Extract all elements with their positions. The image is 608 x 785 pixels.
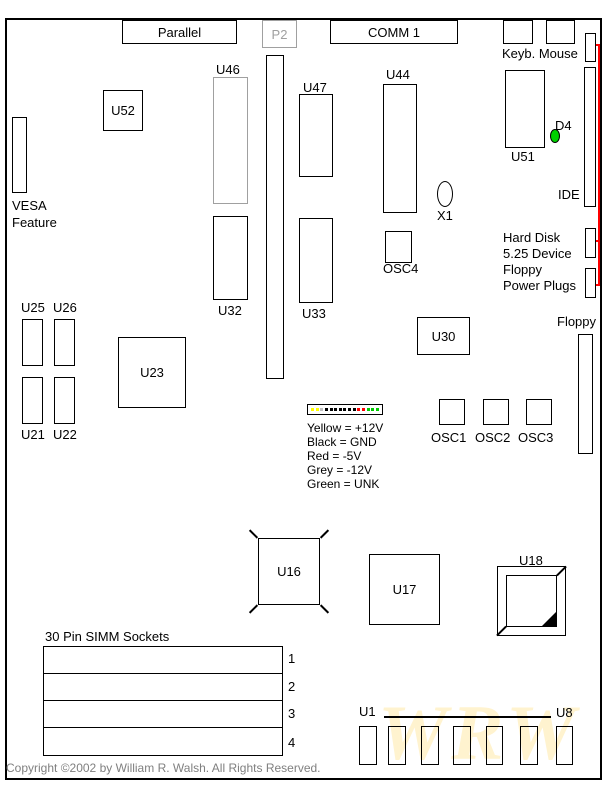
chip-u25 bbox=[22, 319, 43, 366]
power-caption-line2: 5.25 Device bbox=[503, 247, 572, 261]
chip-u46 bbox=[213, 77, 248, 204]
chip-u52: U52 bbox=[103, 90, 143, 131]
power-connector-pins bbox=[307, 404, 383, 415]
chip-u33 bbox=[299, 218, 333, 303]
simm-socket-4 bbox=[43, 727, 283, 756]
chip-u30: U30 bbox=[417, 317, 470, 355]
dip-chip-7 bbox=[556, 726, 573, 765]
power-pin-dot bbox=[334, 408, 337, 411]
simm-number-2: 2 bbox=[288, 680, 295, 694]
u22-label: U22 bbox=[53, 428, 77, 442]
parallel-port-label: Parallel bbox=[158, 25, 201, 40]
vesa-label-line1: VESA bbox=[12, 199, 47, 213]
power-pin-dot bbox=[316, 408, 319, 411]
power-caption-line1: Hard Disk bbox=[503, 231, 560, 245]
copyright-text: Copyright ©2002 by William R. Walsh. All… bbox=[6, 761, 321, 775]
chip-u32 bbox=[213, 216, 248, 300]
vesa-label-line2: Feature bbox=[12, 216, 57, 230]
led-d4 bbox=[550, 129, 560, 143]
chip-u23: U23 bbox=[118, 337, 186, 408]
dip-chip-2 bbox=[388, 726, 406, 765]
u26-label: U26 bbox=[53, 301, 77, 315]
chip-u44 bbox=[383, 84, 417, 213]
legend-line-green: Green = UNK bbox=[307, 477, 379, 491]
u30-label: U30 bbox=[432, 329, 456, 344]
osc3-label: OSC3 bbox=[518, 431, 553, 445]
power-caption-line4: Power Plugs bbox=[503, 279, 576, 293]
power-plug-connector-2 bbox=[585, 268, 596, 298]
ide-label: IDE bbox=[558, 188, 580, 202]
u18-pin1-corner-mark bbox=[542, 612, 556, 626]
legend-line-black: Black = GND bbox=[307, 435, 377, 449]
u33-label: U33 bbox=[302, 307, 326, 321]
u17-label: U17 bbox=[393, 582, 417, 597]
power-pin-dot bbox=[376, 408, 379, 411]
u47-label: U47 bbox=[303, 81, 327, 95]
chip-u26 bbox=[54, 319, 75, 366]
oscillator-osc2 bbox=[483, 399, 509, 425]
red-line-vertical bbox=[598, 44, 600, 286]
u51-label: U51 bbox=[511, 150, 535, 164]
osc2-label: OSC2 bbox=[475, 431, 510, 445]
crystal-x1 bbox=[437, 181, 453, 207]
parallel-port-connector: Parallel bbox=[122, 20, 237, 44]
u8-label: U8 bbox=[556, 706, 573, 720]
dip-chip-3 bbox=[421, 726, 439, 765]
chip-u17: U17 bbox=[369, 554, 440, 625]
vesa-feature-connector bbox=[12, 117, 27, 193]
dip-chip-6 bbox=[520, 726, 538, 765]
keyb-mouse-label: Keyb. Mouse bbox=[502, 47, 578, 61]
legend-line-grey: Grey = -12V bbox=[307, 463, 372, 477]
legend-line-yellow: Yellow = +12V bbox=[307, 421, 383, 435]
ide-connector bbox=[584, 67, 596, 207]
simm-number-3: 3 bbox=[288, 707, 295, 721]
power-pin-dot bbox=[348, 408, 351, 411]
osc4-label: OSC4 bbox=[383, 262, 418, 276]
simm-socket-1 bbox=[43, 646, 283, 674]
comm1-label: COMM 1 bbox=[368, 25, 420, 40]
small-header-connector bbox=[585, 33, 596, 62]
power-pin-dot bbox=[330, 408, 333, 411]
power-caption-line3: Floppy bbox=[503, 263, 542, 277]
simm-socket-2 bbox=[43, 673, 283, 701]
u21-label: U21 bbox=[21, 428, 45, 442]
u1-u8-span-line bbox=[384, 716, 551, 718]
u25-label: U25 bbox=[21, 301, 45, 315]
floppy-label: Floppy bbox=[557, 315, 596, 329]
dip-chip-5 bbox=[486, 726, 503, 765]
oscillator-osc4 bbox=[385, 231, 412, 263]
power-pin-dot bbox=[339, 408, 342, 411]
power-pin-dot bbox=[325, 408, 328, 411]
keyboard-connector bbox=[503, 20, 533, 44]
power-pin-dot bbox=[362, 408, 365, 411]
p2-connector: P2 bbox=[262, 20, 297, 48]
power-pin-dot bbox=[371, 408, 374, 411]
u23-label: U23 bbox=[140, 365, 164, 380]
power-pin-dot bbox=[343, 408, 346, 411]
legend-line-red: Red = -5V bbox=[307, 449, 361, 463]
oscillator-osc3 bbox=[526, 399, 552, 425]
power-pin-dot bbox=[367, 408, 370, 411]
power-plug-connector-1 bbox=[585, 228, 596, 258]
comm1-connector: COMM 1 bbox=[330, 20, 458, 44]
u16-label: U16 bbox=[277, 564, 301, 579]
long-vertical-connector bbox=[266, 55, 284, 379]
p2-label: P2 bbox=[272, 27, 288, 42]
power-pin-dot bbox=[311, 408, 314, 411]
dip-chip-1 bbox=[359, 726, 377, 765]
u32-label: U32 bbox=[218, 304, 242, 318]
chip-u21 bbox=[22, 377, 43, 424]
simm-number-1: 1 bbox=[288, 652, 295, 666]
power-pin-dot bbox=[320, 408, 323, 411]
floppy-connector bbox=[578, 334, 593, 454]
motherboard-diagram: WRW Parallel P2 COMM 1 Keyb. Mouse VESA … bbox=[0, 0, 608, 785]
u44-label: U44 bbox=[386, 68, 410, 82]
u52-label: U52 bbox=[111, 103, 135, 118]
oscillator-osc1 bbox=[439, 399, 465, 425]
power-pin-dot bbox=[353, 408, 356, 411]
dip-chip-4 bbox=[453, 726, 471, 765]
x1-label: X1 bbox=[437, 209, 453, 223]
u46-label: U46 bbox=[216, 63, 240, 77]
chip-u51 bbox=[505, 70, 545, 148]
chip-u47 bbox=[299, 94, 333, 177]
simm-title: 30 Pin SIMM Sockets bbox=[45, 630, 169, 644]
u1-label: U1 bbox=[359, 705, 376, 719]
simm-number-4: 4 bbox=[288, 736, 295, 750]
osc1-label: OSC1 bbox=[431, 431, 466, 445]
simm-socket-3 bbox=[43, 700, 283, 728]
mouse-connector bbox=[546, 20, 575, 44]
chip-u16: U16 bbox=[258, 538, 320, 605]
chip-u22 bbox=[54, 377, 75, 424]
power-pin-dot bbox=[357, 408, 360, 411]
